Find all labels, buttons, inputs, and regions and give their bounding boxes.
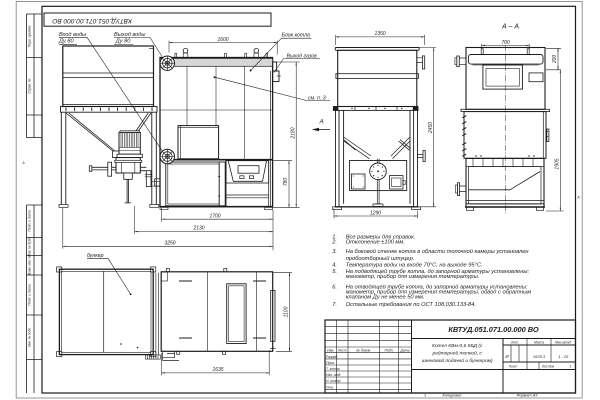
svg-text:КВТУД.051.071.00.000 ВО: КВТУД.051.071.00.000 ВО <box>52 17 131 24</box>
svg-text:Выход воды: Выход воды <box>114 32 145 38</box>
svg-text:Лит.: Лит. <box>510 340 519 344</box>
svg-text:Масса: Масса <box>534 340 544 344</box>
svg-text:700: 700 <box>501 40 510 46</box>
svg-text:Ду 80: Ду 80 <box>58 39 74 45</box>
svg-text:2.: 2. <box>331 240 337 246</box>
svg-text:редторной топкой, с: редторной топкой, с <box>432 350 483 357</box>
svg-text:Т. контр.: Т. контр. <box>326 367 341 371</box>
svg-text:Изм.: Изм. <box>327 349 334 353</box>
svg-text:4.: 4. <box>332 263 337 269</box>
svg-text:№ докум.: № докум. <box>356 349 371 353</box>
svg-text:1600: 1600 <box>217 37 228 43</box>
svg-text:1700: 1700 <box>209 213 220 219</box>
svg-text:1100: 1100 <box>284 306 290 317</box>
svg-text:6.: 6. <box>332 284 337 290</box>
svg-text:бункер: бункер <box>87 253 104 259</box>
svg-text:Остальные требования по ОСТ 10: Остальные требования по ОСТ 108.030.133-… <box>346 302 476 308</box>
svg-text:клапаном Ду не менее 50 мм.: клапаном Ду не менее 50 мм. <box>346 295 425 301</box>
svg-text:Температура воды на входе 70°С: Температура воды на входе 70°С, на выход… <box>346 263 483 269</box>
svg-text:1290: 1290 <box>370 210 381 216</box>
svg-text:Утв.: Утв. <box>326 386 334 390</box>
svg-text:Масштаб: Масштаб <box>555 340 571 344</box>
svg-text:КВТУД.051.071.00.000 ВО: КВТУД.051.071.00.000 ВО <box>448 325 539 334</box>
svg-text:780: 780 <box>283 178 289 187</box>
svg-text:А: А <box>319 119 324 126</box>
svg-text:Подп.: Подп. <box>384 349 393 353</box>
svg-text:Инв. № подл.: Инв. № подл. <box>28 327 32 347</box>
svg-text:1 : 20: 1 : 20 <box>558 354 569 359</box>
svg-text:1350: 1350 <box>374 31 385 37</box>
svg-text:Блок котла: Блок котла <box>282 33 311 39</box>
svg-text:1: 1 <box>424 394 426 398</box>
svg-text:Лист: Лист <box>508 365 518 369</box>
svg-text:Ду 80: Ду 80 <box>115 39 131 45</box>
svg-text:1: 1 <box>570 365 572 369</box>
svg-text:2130: 2130 <box>192 226 204 232</box>
svg-text:2180: 2180 <box>290 127 296 139</box>
svg-text:3.: 3. <box>332 249 337 255</box>
svg-text:Нач. отд.: Нач. отд. <box>326 373 341 377</box>
svg-text:3250: 3250 <box>164 240 175 246</box>
svg-text:Копировал: Копировал <box>443 394 463 398</box>
svg-text:Котел КВм-0,6 КБД (с: Котел КВм-0,6 КБД (с <box>432 343 483 349</box>
svg-text:Формат А3: Формат А3 <box>517 394 539 398</box>
svg-text:Инв. № дубл.: Инв. № дубл. <box>28 237 32 257</box>
svg-text:Листов: Листов <box>541 365 555 369</box>
svg-text:манометр, прибор для измерения: манометр, прибор для измерения температу… <box>346 274 480 280</box>
svg-text:1978,3: 1978,3 <box>533 354 546 359</box>
svg-text:Взам. инв. №: Взам. инв. № <box>28 255 32 275</box>
svg-text:Н. контр.: Н. контр. <box>326 379 341 383</box>
svg-text:1905: 1905 <box>554 158 560 169</box>
svg-text:Справ. №: Справ. № <box>28 78 32 94</box>
svg-text:пробоотборный штуцер.: пробоотборный штуцер. <box>346 255 415 262</box>
svg-text:А – А: А – А <box>501 24 519 31</box>
svg-text:Дата: Дата <box>400 349 410 353</box>
svg-text:200: 200 <box>552 55 558 65</box>
svg-text:Подп. и дата: Подп. и дата <box>28 210 32 231</box>
svg-text:5.: 5. <box>332 269 337 275</box>
svg-text:Пров.: Пров. <box>326 361 335 365</box>
svg-text:На боковой стенке котла в обла: На боковой стенке котла в области топочн… <box>346 248 530 255</box>
svg-text:Перв. примен.: Перв. примен. <box>28 25 32 48</box>
svg-text:Отклонение ±100 мм.: Отклонение ±100 мм. <box>346 240 405 246</box>
svg-text:шнековой подачей и бункером): шнековой подачей и бункером) <box>422 357 493 364</box>
svg-text:2450: 2450 <box>428 122 434 134</box>
svg-text:1635: 1635 <box>212 367 223 373</box>
svg-text:Лист: Лист <box>337 349 347 353</box>
svg-text:Разраб.: Разраб. <box>326 355 338 359</box>
svg-text:Подп. и дата: Подп. и дата <box>28 284 32 305</box>
svg-text:Вход воды: Вход воды <box>59 32 86 38</box>
svg-text:7.: 7. <box>332 302 337 308</box>
